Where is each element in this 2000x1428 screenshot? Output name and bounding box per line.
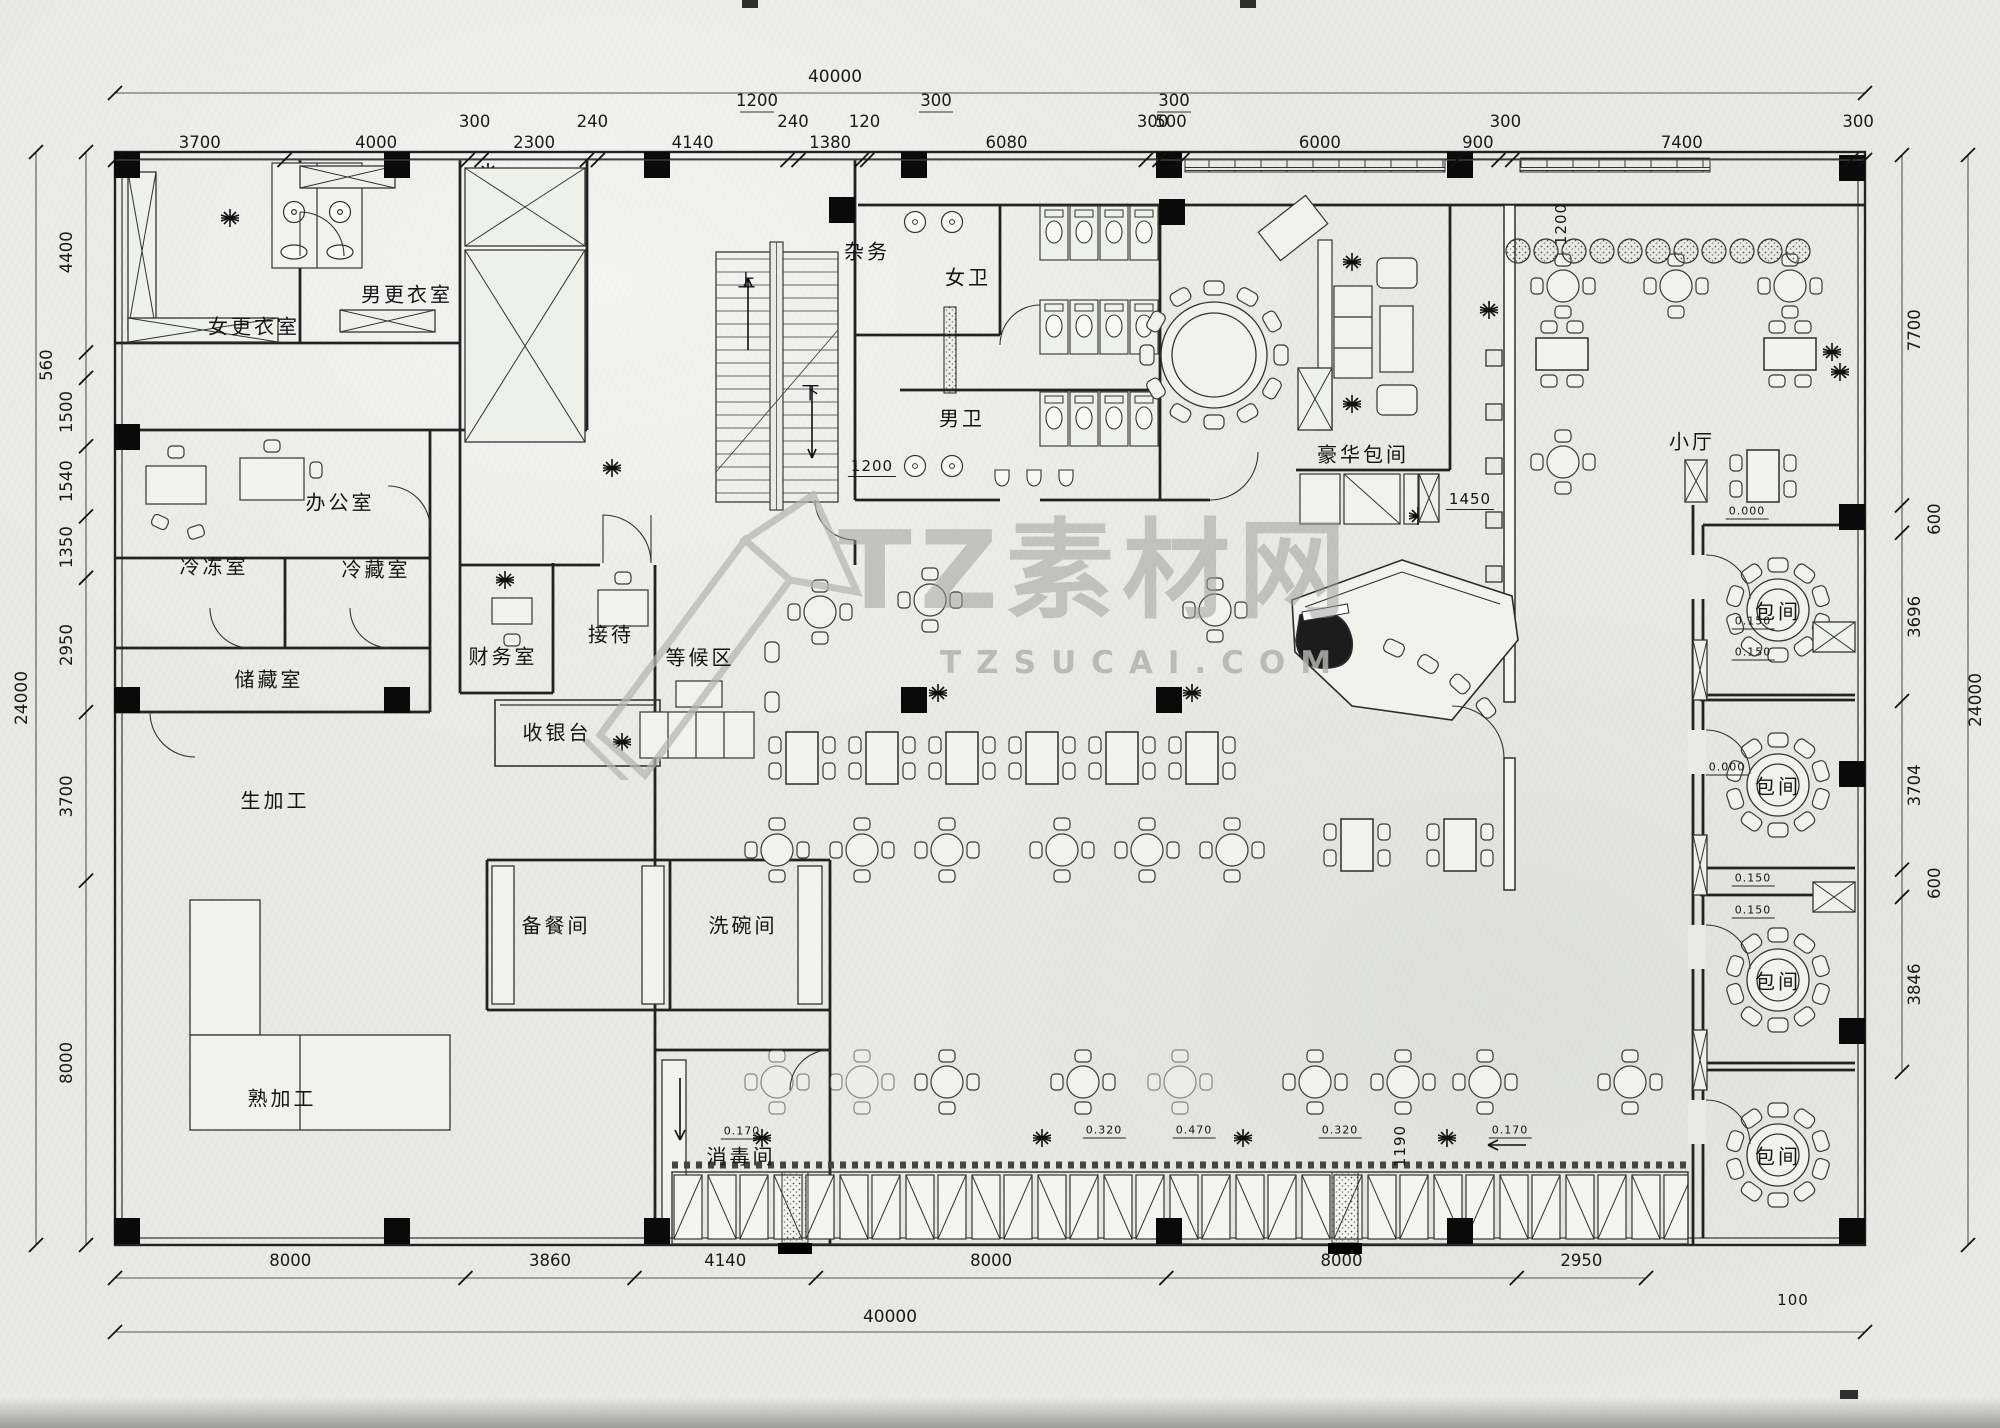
deluxe-room-furniture [1140,195,1417,430]
svg-text:3860: 3860 [529,1251,571,1270]
floor-plan-linework: 3700400030023002404140240138012060803005… [0,0,2000,1428]
svg-text:8000: 8000 [1321,1251,1363,1270]
svg-text:500: 500 [1155,112,1187,131]
svg-text:300: 300 [1490,112,1522,131]
svg-text:240: 240 [577,112,609,131]
svg-text:2950: 2950 [1560,1251,1602,1270]
dining-tables [745,568,1662,1114]
svg-text:1540: 1540 [57,460,76,502]
crop-mark [1240,0,1256,8]
svg-text:24000: 24000 [1966,673,1986,727]
svg-text:4000: 4000 [355,133,397,152]
svg-text:600: 600 [1925,868,1944,900]
svg-text:24000: 24000 [12,671,32,725]
svg-text:4140: 4140 [704,1251,746,1270]
svg-text:3700: 3700 [179,133,221,152]
blueprint-sheet: 3700400030023002404140240138012060803005… [0,0,2000,1428]
svg-text:300: 300 [1842,112,1874,131]
page-edge-shadow [0,1398,2000,1428]
svg-text:6000: 6000 [1299,133,1341,152]
svg-text:120: 120 [849,112,881,131]
svg-text:6080: 6080 [985,133,1027,152]
shaft-and-bench-boxes [128,166,1855,1090]
svg-text:900: 900 [1462,133,1494,152]
svg-text:7700: 7700 [1905,309,1924,351]
crop-mark [742,0,758,8]
svg-text:1380: 1380 [809,133,851,152]
piano-bar-counter [1292,560,1518,720]
svg-text:40000: 40000 [808,67,862,87]
svg-text:300: 300 [459,112,491,131]
svg-text:2300: 2300 [513,133,555,152]
waiting-area-furniture [640,642,779,758]
stairs [716,242,838,510]
small-hall-furniture [1506,239,1822,502]
svg-text:7400: 7400 [1661,133,1703,152]
svg-text:300: 300 [920,91,952,110]
svg-text:3700: 3700 [57,775,76,817]
svg-text:2950: 2950 [57,624,76,666]
svg-text:8000: 8000 [970,1251,1012,1270]
svg-text:40000: 40000 [863,1307,917,1327]
svg-text:8000: 8000 [57,1042,76,1084]
svg-text:560: 560 [37,349,56,381]
svg-text:4400: 4400 [57,231,76,273]
svg-text:1350: 1350 [57,526,76,568]
toilet-fixtures [905,206,1159,486]
svg-text:4140: 4140 [672,133,714,152]
svg-text:3696: 3696 [1905,596,1924,638]
svg-text:1500: 1500 [57,391,76,433]
svg-text:3704: 3704 [1905,764,1924,806]
svg-text:1200: 1200 [736,91,778,110]
svg-text:8000: 8000 [269,1251,311,1270]
svg-text:3846: 3846 [1905,963,1924,1005]
svg-text:300: 300 [1158,91,1190,110]
svg-text:600: 600 [1925,503,1944,535]
svg-text:240: 240 [777,112,809,131]
